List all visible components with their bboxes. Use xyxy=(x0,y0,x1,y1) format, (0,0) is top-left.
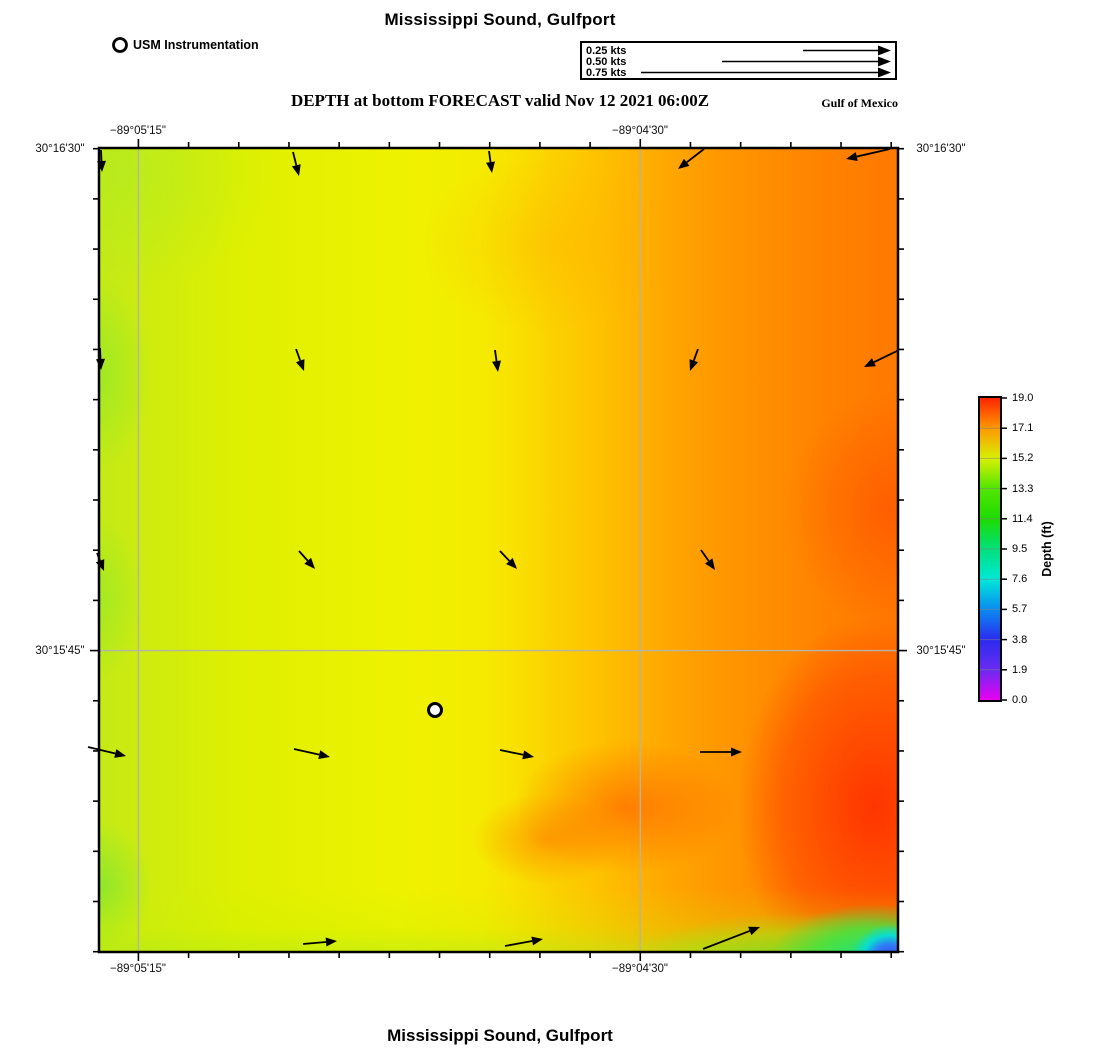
colorbar-tick-label: 13.3 xyxy=(1012,483,1033,495)
velocity-legend-label-075: 0.75 kts xyxy=(586,67,626,79)
axis-label-top-1: −89°04'30" xyxy=(612,125,668,137)
depth-colorbar xyxy=(978,396,1002,702)
colorbar-tick-label: 9.5 xyxy=(1012,543,1027,555)
axis-label-bottom-1: −89°04'30" xyxy=(612,963,668,975)
axis-label-left-1: 30°15'45" xyxy=(35,645,84,657)
colorbar-tick-label: 0.0 xyxy=(1012,694,1027,706)
colorbar-tick-label: 15.2 xyxy=(1012,452,1033,464)
instrument-marker-icon xyxy=(114,39,127,52)
depth-heatmap xyxy=(99,148,898,952)
colorbar-tick-label: 19.0 xyxy=(1012,392,1033,404)
region-label: Gulf of Mexico xyxy=(760,96,898,111)
page-title: Mississippi Sound, Gulfport xyxy=(0,10,1000,30)
axis-label-top-0: −89°05'15" xyxy=(110,125,166,137)
colorbar-tick-label: 7.6 xyxy=(1012,573,1027,585)
colorbar-title: Depth (ft) xyxy=(1040,521,1054,577)
axis-label-left-0: 30°16'30" xyxy=(35,143,84,155)
instrument-legend-label: USM Instrumentation xyxy=(133,38,259,52)
colorbar-tick-label: 1.9 xyxy=(1012,664,1027,676)
axis-label-bottom-0: −89°05'15" xyxy=(110,963,166,975)
colorbar-tick-label: 3.8 xyxy=(1012,634,1027,646)
forecast-figure: Mississippi Sound, Gulfport USM Instrume… xyxy=(0,0,1100,1050)
page-title-bottom: Mississippi Sound, Gulfport xyxy=(0,1026,1000,1046)
colorbar-tick-label: 11.4 xyxy=(1012,513,1033,525)
velocity-legend-box xyxy=(580,41,897,80)
colorbar-tick-label: 5.7 xyxy=(1012,603,1027,615)
axis-label-right-1: 30°15'45" xyxy=(916,645,965,657)
axis-label-right-0: 30°16'30" xyxy=(916,143,965,155)
colorbar-tick-label: 17.1 xyxy=(1012,422,1033,434)
